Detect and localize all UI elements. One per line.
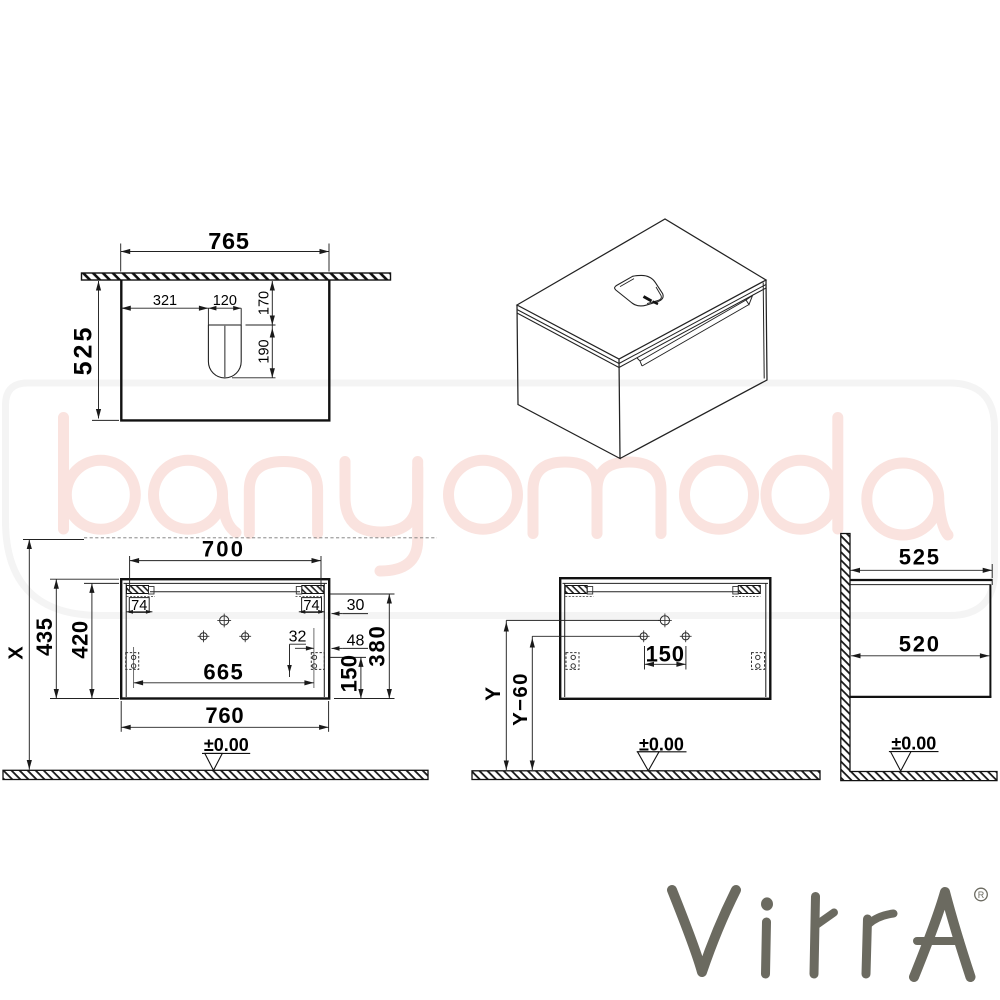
svg-text:32: 32 <box>289 629 307 646</box>
svg-text:665: 665 <box>203 660 244 685</box>
svg-text:760: 760 <box>205 703 244 728</box>
svg-text:190: 190 <box>257 339 273 363</box>
svg-text:±0.00: ±0.00 <box>891 733 936 753</box>
svg-text:525: 525 <box>70 325 98 376</box>
svg-text:170: 170 <box>257 291 273 315</box>
svg-text:420: 420 <box>68 620 93 659</box>
svg-text:380: 380 <box>365 624 390 666</box>
svg-text:120: 120 <box>213 293 237 309</box>
svg-text:X: X <box>6 646 28 660</box>
svg-text:R: R <box>978 890 985 900</box>
svg-text:48: 48 <box>347 633 365 650</box>
svg-text:Y−60: Y−60 <box>509 672 532 726</box>
svg-text:765: 765 <box>208 228 250 254</box>
svg-text:150: 150 <box>336 655 361 693</box>
svg-text:Y: Y <box>482 687 505 701</box>
svg-text:321: 321 <box>153 293 177 309</box>
svg-text:±0.00: ±0.00 <box>204 735 249 755</box>
svg-text:520: 520 <box>899 631 941 656</box>
svg-text:700: 700 <box>202 537 245 562</box>
svg-text:150: 150 <box>646 642 685 667</box>
svg-text:435: 435 <box>32 617 57 656</box>
svg-text:525: 525 <box>899 545 941 570</box>
svg-text:30: 30 <box>347 597 365 614</box>
